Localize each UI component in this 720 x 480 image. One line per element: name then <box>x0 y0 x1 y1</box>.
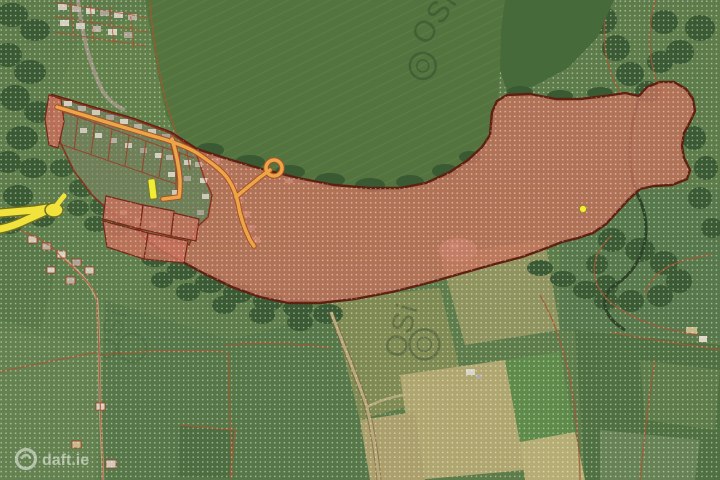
yellow-dot-marker <box>580 206 587 213</box>
aerial-map: OSi OSi OSi daft.ie <box>0 0 720 480</box>
daft-watermark-text: daft.ie <box>42 452 89 469</box>
aerial-map-canvas[interactable]: OSi OSi OSi daft.ie <box>0 0 720 480</box>
